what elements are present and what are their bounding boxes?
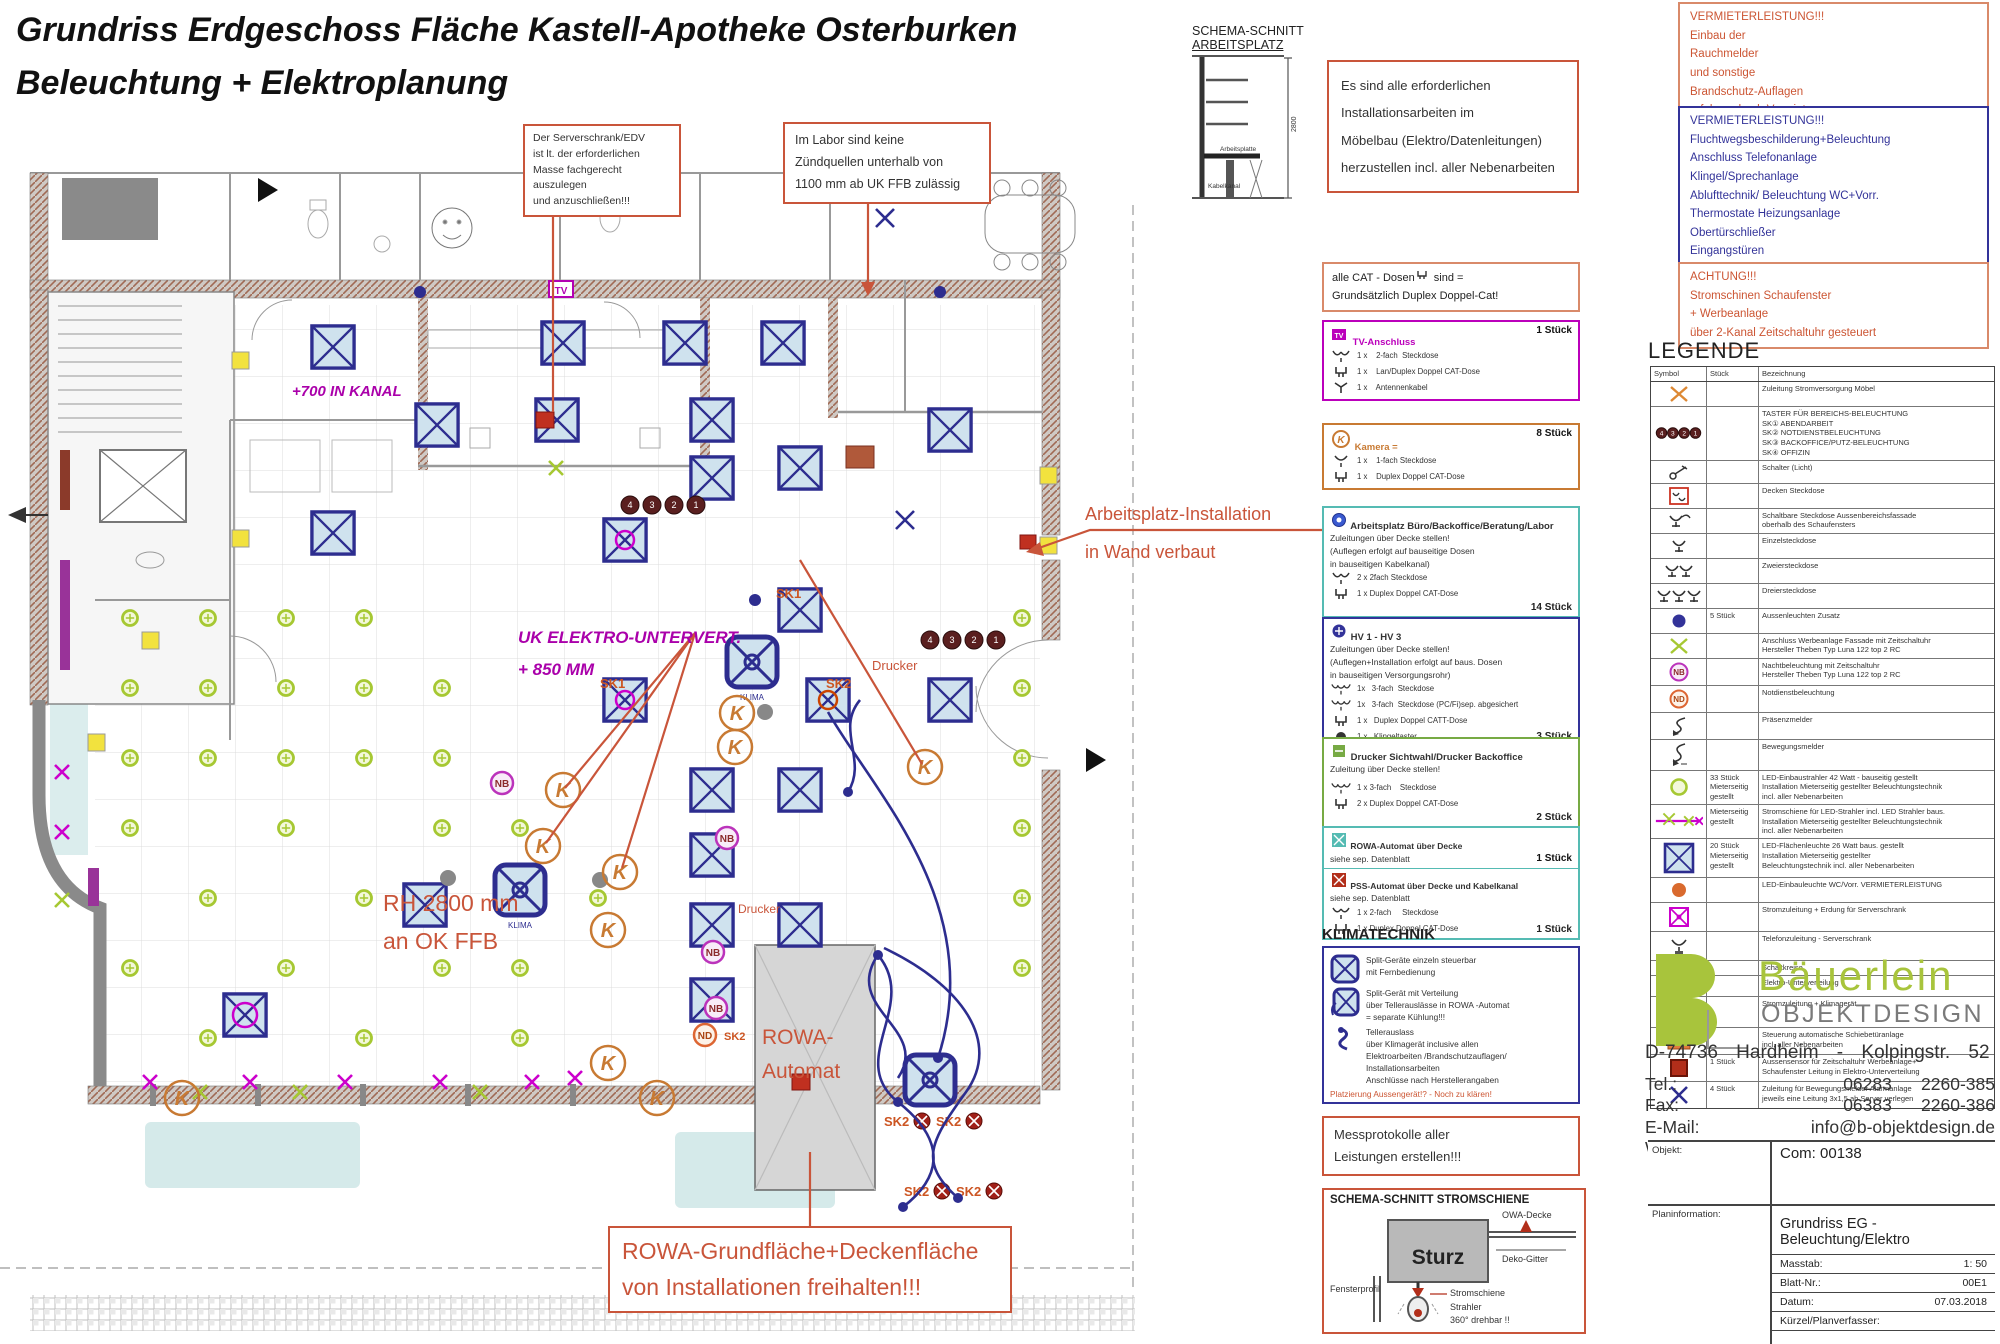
legend-stueck: 20 Stück Mieterseitig gestellt bbox=[1707, 839, 1759, 877]
spec-item: 1 x 3-fach Steckdose bbox=[1330, 780, 1572, 796]
legend-bezeichnung: Zweiersteckdose bbox=[1759, 559, 1994, 583]
steckdose-2fach-icon bbox=[1330, 570, 1352, 586]
svg-text:K: K bbox=[601, 1053, 617, 1075]
schema-arbeitsplatz: SCHEMA-SCHNITT ARBEITSPLATZ Arbeitsplatt… bbox=[1192, 24, 1342, 207]
spec-box-rowa: ROWA-Automat über Decke siehe sep. Daten… bbox=[1322, 826, 1580, 940]
legend-stueck: Mieterseitig gestellt bbox=[1707, 805, 1759, 838]
svg-text:Sturz: Sturz bbox=[1412, 1246, 1465, 1269]
legend-bezeichnung: Bewegungsmelder bbox=[1759, 740, 1994, 770]
svg-text:4: 4 bbox=[927, 635, 932, 645]
title-line-2: Beleuchtung + Elektroplanung bbox=[16, 57, 1017, 110]
legend-bezeichnung: Stromschiene für LED-Strahler incl. LED … bbox=[1759, 805, 1994, 838]
arbeitsplatz-icon bbox=[1330, 521, 1348, 532]
note-line: Brandschutz-Auflagen bbox=[1690, 83, 1977, 102]
cat-dose-icon bbox=[1330, 586, 1352, 602]
klima-label: KLIMA bbox=[508, 921, 533, 930]
klima-entry: Split-Gerät mit Verteilung über Tellerau… bbox=[1330, 987, 1572, 1023]
spec-item-text: 1 x 2-fach Steckdose bbox=[1357, 907, 1438, 919]
legend-stueck bbox=[1707, 559, 1759, 583]
note-achtung: ACHTUNG!!! Stromschinen Schaufenster+ We… bbox=[1678, 262, 1989, 349]
bewegungsmelder-icon bbox=[1651, 740, 1707, 770]
note-line: Zuleitungen über Decke stellen! bbox=[1330, 643, 1572, 656]
note-title: ACHTUNG!!! bbox=[1690, 268, 1977, 287]
legend-row: 4321TASTER FÜR BEREICHS-BELEUCHTUNG SK① … bbox=[1651, 406, 1994, 460]
brand-address: D-74736 Hardheim - Kolpingstr. 52 bbox=[1645, 1042, 1995, 1064]
legend-row: Einzelsteckdose bbox=[1651, 533, 1994, 558]
titleblock-row: Blatt-Nr.:00E1 bbox=[1772, 1274, 1995, 1293]
spec-title: ROWA-Automat über Decke bbox=[1350, 841, 1462, 851]
legend-stueck bbox=[1707, 713, 1759, 739]
titleblock-row-value: 00E1 bbox=[1962, 1277, 1987, 1289]
svg-text:K: K bbox=[175, 1088, 191, 1110]
bauerlein-logo bbox=[1648, 952, 1750, 1054]
svg-text:NB: NB bbox=[495, 779, 509, 790]
north-arrow bbox=[258, 178, 278, 202]
spec-item: 1 x Antennenkabel bbox=[1330, 380, 1572, 396]
legend-stueck bbox=[1707, 878, 1759, 902]
spec-item-text: 2 x Duplex Doppel CAT-Dose bbox=[1357, 798, 1458, 810]
schema-stromschiene: SCHEMA-SCHNITT STROMSCHIENE Sturz OWA-De… bbox=[1322, 1188, 1586, 1334]
cat-note-text: alle CAT - Dosen bbox=[1332, 272, 1415, 284]
spec-item: 1 x 2-fach Steckdose bbox=[1330, 905, 1572, 921]
note-line: Ablufttechnik/ Beleuchtung WC+Vorr. bbox=[1690, 187, 1977, 206]
titleblock-row: Kürzel/Planverfasser: bbox=[1772, 1312, 1995, 1331]
legend-header: Symbol Stück Bezeichnung bbox=[1651, 367, 1994, 382]
svg-text:Strahler: Strahler bbox=[1450, 1302, 1482, 1312]
spec-item-text: 1 x Antennenkabel bbox=[1357, 382, 1428, 394]
svg-text:4: 4 bbox=[627, 500, 632, 510]
werbeanlage-x-icon bbox=[1651, 634, 1707, 658]
spec-title: Kamera = bbox=[1355, 442, 1398, 453]
spec-item-text: 1 x Duplex Doppel CAT-Dose bbox=[1357, 588, 1458, 600]
note-line: Masse fachgerecht auszulegen bbox=[533, 163, 671, 195]
decken-steckdose-icon bbox=[1651, 484, 1707, 508]
svg-text:K: K bbox=[650, 1088, 666, 1110]
drucker-icon bbox=[1330, 752, 1348, 763]
spec-title: HV 1 - HV 3 bbox=[1351, 632, 1402, 643]
svg-text:Kabelkanal: Kabelkanal bbox=[1208, 183, 1241, 190]
svg-text:K: K bbox=[730, 703, 746, 725]
svg-text:SK1: SK1 bbox=[776, 586, 801, 601]
contact-row: E-Mail:info@b-objektdesign.de bbox=[1645, 1117, 1995, 1138]
spec-title: PSS-Automat über Decke und Kabelkanal bbox=[1350, 881, 1518, 891]
svg-text:3: 3 bbox=[949, 635, 954, 645]
svg-text:SK2: SK2 bbox=[884, 1114, 909, 1129]
titleblock-row: Masstab:1: 50 bbox=[1772, 1255, 1995, 1274]
note-title: VERMIETERLEISTUNG!!! bbox=[1690, 8, 1977, 27]
schema-stromschiene-title: SCHEMA-SCHNITT STROMSCHIENE bbox=[1330, 1194, 1578, 1206]
note-line: Einbau der bbox=[1690, 27, 1977, 46]
schema-arbeitsplatz-title1: SCHEMA-SCHNITT bbox=[1192, 24, 1342, 38]
spec-count: 8 Stück bbox=[1536, 428, 1572, 439]
kamera-icon: K bbox=[1330, 442, 1352, 453]
svg-text:Deko-Gitter: Deko-Gitter bbox=[1502, 1254, 1548, 1264]
note-serverschrank: Der Serverschrank/EDVist lt. der erforde… bbox=[523, 124, 681, 217]
note-line: Klingel/Sprechanlage bbox=[1690, 168, 1977, 187]
svg-text:Stromschiene: Stromschiene bbox=[1450, 1288, 1505, 1298]
klima-entry-text: Split-Gerät mit Verteilung über Tellerau… bbox=[1366, 987, 1509, 1023]
spec-item: 1x 3-fach Steckdose bbox=[1330, 681, 1572, 697]
titleblock-row-label: Masstab: bbox=[1780, 1258, 1823, 1270]
legend-bezeichnung: Anschluss Werbeanlage Fassade mit Zeitsc… bbox=[1759, 634, 1994, 658]
note-line: + Werbeanlage bbox=[1690, 305, 1977, 324]
legend-row: NBNachtbeleuchtung mit Zeitschaltuhr Her… bbox=[1651, 658, 1994, 685]
svg-text:NB: NB bbox=[1673, 668, 1685, 677]
note-title: VERMIETERLEISTUNG!!! bbox=[1690, 112, 1977, 131]
drawing-title: Grundriss Erdgeschoss Fläche Kastell-Apo… bbox=[16, 4, 1017, 109]
contact-label: Tel.: bbox=[1645, 1074, 1737, 1095]
legend-bezeichnung: Decken Steckdose bbox=[1759, 484, 1994, 508]
spec-item: 1 x Duplex Doppel CAT-Dose bbox=[1330, 586, 1572, 602]
spec-item: 1 x Lan/Duplex Doppel CAT-Dose bbox=[1330, 364, 1572, 380]
legend-bezeichnung: Zuleitung Stromversorgung Möbel bbox=[1759, 382, 1994, 406]
pss-icon bbox=[1330, 881, 1348, 891]
note-rowa-freihalten: ROWA-Grundfläche+Deckenflächevon Install… bbox=[608, 1226, 1012, 1313]
svg-text:NB: NB bbox=[720, 834, 734, 845]
note-line: in bauseitigen Versorgungsrohr) bbox=[1330, 669, 1572, 682]
spec-item-text: 1 x 3-fach Steckdose bbox=[1357, 782, 1436, 794]
spec-item-text: 1 x 1-fach Steckdose bbox=[1357, 455, 1436, 467]
cat-note-text2: sind = bbox=[1431, 272, 1464, 284]
rowa-icon bbox=[1330, 841, 1348, 851]
legend-bezeichnung: Schalter (Licht) bbox=[1759, 461, 1994, 483]
svg-text:SK2: SK2 bbox=[826, 676, 851, 691]
legend-row: LED-Einbauleuchte WC/Vorr. VERMIETERLEIS… bbox=[1651, 877, 1994, 902]
tv-anschluss-icon: TV bbox=[1330, 337, 1350, 348]
note-line: Zuleitung über Decke stellen! bbox=[1330, 763, 1572, 776]
steckdose-3fach-icon bbox=[1330, 681, 1352, 697]
notdienst-icon: ND bbox=[1651, 686, 1707, 712]
legend-stueck bbox=[1707, 509, 1759, 533]
steckdose-2fach-icon bbox=[1330, 905, 1352, 921]
legend-bezeichnung: Einzelsteckdose bbox=[1759, 534, 1994, 558]
spec-count: 14 Stück bbox=[1330, 602, 1572, 613]
contact-value: 06283 2260-385 bbox=[1737, 1074, 1995, 1095]
spec-box-drucker: Drucker Sichtwahl/Drucker Backoffice Zul… bbox=[1322, 737, 1580, 828]
schema-arbeitsplatz-title2: ARBEITSPLATZ bbox=[1192, 38, 1342, 52]
contact-row: Fax:06383 2260-386 bbox=[1645, 1095, 1995, 1116]
led-einbaustrahler-icon bbox=[1651, 771, 1707, 804]
legend-row: Schalter (Licht) bbox=[1651, 460, 1994, 483]
spec-count: 1 Stück bbox=[1536, 853, 1572, 864]
svg-text:1: 1 bbox=[993, 635, 998, 645]
titleblock-row: Datum:07.03.2018 bbox=[1772, 1293, 1995, 1312]
note-line: (Auflegen+Installation erfolgt auf baus.… bbox=[1330, 656, 1572, 669]
titleblock-row-label: Datum: bbox=[1780, 1296, 1814, 1308]
spec-box-tv: TV TV-Anschluss 1 Stück 1 x 2-fach Steck… bbox=[1322, 320, 1580, 401]
legend-row: Dreiersteckdose bbox=[1651, 583, 1994, 608]
svg-text:TV: TV bbox=[1335, 333, 1344, 340]
brand-subtitle: OBJEKTDESIGN bbox=[1761, 1000, 1984, 1029]
legend-row: Zuleitung Stromversorgung Möbel bbox=[1651, 382, 1994, 406]
spec-item-text: 1 x Duplex Doppel CATT-Dose bbox=[1357, 715, 1467, 727]
svg-text:3: 3 bbox=[649, 500, 654, 510]
cat-dose-icon bbox=[1330, 364, 1352, 380]
svg-text:4: 4 bbox=[1660, 431, 1664, 438]
spec-title: Drucker Sichtwahl/Drucker Backoffice bbox=[1351, 752, 1523, 763]
spec-line: siehe sep. Datenblatt bbox=[1330, 892, 1572, 905]
legend-bezeichnung: LED-Einbauleuchte WC/Vorr. VERMIETERLEIS… bbox=[1759, 878, 1994, 902]
titleblock-row-value: 1: 50 bbox=[1964, 1258, 1987, 1270]
klima-entry-text: Split-Geräte einzeln steuerbar mit Fernb… bbox=[1366, 954, 1476, 978]
steckdose-2fach-icon bbox=[1330, 348, 1352, 364]
svg-text:OWA-Decke: OWA-Decke bbox=[1502, 1210, 1552, 1220]
svg-text:K: K bbox=[1337, 435, 1345, 446]
stromschiene-icon bbox=[1651, 805, 1707, 838]
svg-text:ND: ND bbox=[698, 1031, 712, 1042]
svg-text:3: 3 bbox=[1671, 431, 1675, 438]
legend-title: LEGENDE bbox=[1648, 338, 1760, 364]
legend-header-symbol: Symbol bbox=[1651, 367, 1707, 381]
svg-text:Arbeitsplatte: Arbeitsplatte bbox=[1220, 146, 1257, 153]
legend-bezeichnung: Nachtbeleuchtung mit Zeitschaltuhr Herst… bbox=[1759, 659, 1994, 685]
plan-title-value: Grundriss EG - Beleuchtung/Elektro bbox=[1772, 1206, 1995, 1255]
note-line: (Auflegen erfolgt auf bauseitige Dosen bbox=[1330, 545, 1572, 558]
svg-text:SK2: SK2 bbox=[724, 1031, 745, 1043]
einzelsteckdose-icon bbox=[1651, 534, 1707, 558]
legend-header-stueck: Stück bbox=[1707, 367, 1759, 381]
spec-item-text: 1x 3-fach Steckdose (PC/Fi)sep. abgesich… bbox=[1357, 699, 1518, 711]
note-line: und sonstige bbox=[1690, 64, 1977, 83]
legend-stueck bbox=[1707, 740, 1759, 770]
aussenleuchte-icon bbox=[1651, 609, 1707, 633]
contact-label: Fax: bbox=[1645, 1095, 1737, 1116]
cat-dose-icon bbox=[1330, 796, 1352, 812]
legend-stueck: 5 Stück bbox=[1707, 609, 1759, 633]
legend-stueck bbox=[1707, 407, 1759, 460]
legend-bezeichnung: Schaltbare Steckdose Aussenbereichsfassa… bbox=[1759, 509, 1994, 533]
spec-title: TV-Anschluss bbox=[1353, 337, 1416, 348]
contact-label: E-Mail: bbox=[1645, 1117, 1737, 1138]
legend-stueck bbox=[1707, 461, 1759, 483]
note-line: Zündquellen unterhalb von bbox=[795, 152, 979, 174]
svg-text:1: 1 bbox=[1694, 431, 1698, 438]
klima-placement-note: Platzierung Aussengerät!? - Noch zu klär… bbox=[1330, 1089, 1572, 1099]
contact-value: 06383 2260-386 bbox=[1737, 1095, 1995, 1116]
note-cat-dosen: alle CAT - Dosen sind = Grundsätzlich Du… bbox=[1322, 262, 1580, 312]
note-line: Möbelbau (Elektro/Datenleitungen) bbox=[1341, 127, 1565, 154]
spec-box-kamera: K Kamera = 8 Stück 1 x 1-fach Steckdose1… bbox=[1322, 423, 1580, 490]
legend-bezeichnung: Stromzuleitung + Erdung für Serverschran… bbox=[1759, 903, 1994, 931]
spec-item: 1 x 1-fach Steckdose bbox=[1330, 453, 1572, 469]
note-line: 1100 mm ab UK FFB zulässig bbox=[795, 174, 979, 196]
legend-row: Präsenzmelder bbox=[1651, 712, 1994, 739]
tv-icon: TV bbox=[555, 286, 568, 297]
title-line-1: Grundriss Erdgeschoss Fläche Kastell-Apo… bbox=[16, 4, 1017, 57]
led-flaechenleuchte-icon bbox=[1651, 839, 1707, 877]
svg-text:ND: ND bbox=[1673, 695, 1685, 704]
moebel-zuleitung-x-icon bbox=[1651, 382, 1707, 406]
note-line: Leistungen erstellen!!! bbox=[1334, 1146, 1568, 1168]
spec-item-text: 1 x 2-fach Steckdose bbox=[1357, 350, 1438, 362]
legend-stueck bbox=[1707, 634, 1759, 658]
server-strom-icon bbox=[1651, 903, 1707, 931]
note-line: Messprotokolle aller bbox=[1334, 1124, 1568, 1146]
cat-dose-icon bbox=[1415, 272, 1431, 284]
note-line: von Installationen freihalten!!! bbox=[622, 1270, 998, 1306]
note-line: Fluchtwegsbeschilderung+Beleuchtung bbox=[1690, 131, 1977, 150]
titleblock-row-value: 07.03.2018 bbox=[1934, 1296, 1987, 1308]
note-line: Stromschinen Schaufenster bbox=[1690, 287, 1977, 306]
legend-bezeichnung: LED-Flächenleuchte 26 Watt baus. gestell… bbox=[1759, 839, 1994, 877]
titleblock-row-label: Blatt-Nr.: bbox=[1780, 1277, 1821, 1289]
note-line: Zuleitungen über Decke stellen! bbox=[1330, 532, 1572, 545]
legend-row: Stromzuleitung + Erdung für Serverschran… bbox=[1651, 902, 1994, 931]
legend-bezeichnung: Notdienstbeleuchtung bbox=[1759, 686, 1994, 712]
svg-text:SK2: SK2 bbox=[904, 1184, 929, 1199]
planinformation-label: Planinformation: bbox=[1648, 1206, 1772, 1344]
note-line: Obertürschließer bbox=[1690, 224, 1977, 243]
led-einbauleuchte-wc-icon bbox=[1651, 878, 1707, 902]
klima-entry-text: Tellerauslass über Klimagerät inclusive … bbox=[1366, 1026, 1507, 1086]
note-line: Thermostate Heizungsanlage bbox=[1690, 205, 1977, 224]
klima-entry: Tellerauslass über Klimagerät inclusive … bbox=[1330, 1026, 1572, 1086]
rowa-automat-area bbox=[755, 945, 875, 1190]
dreiersteckdose-icon bbox=[1651, 584, 1707, 608]
svg-text:K: K bbox=[613, 862, 629, 884]
legend-row: 33 Stück Mieterseitig gestelltLED-Einbau… bbox=[1651, 770, 1994, 804]
spec-box-arbeitsplatz: Arbeitsplatz Büro/Backoffice/Beratung/La… bbox=[1322, 506, 1580, 618]
spec-line: siehe sep. Datenblatt bbox=[1330, 853, 1410, 866]
legend-row: Anschluss Werbeanlage Fassade mit Zeitsc… bbox=[1651, 633, 1994, 658]
note-line: Es sind alle erforderlichen bbox=[1341, 72, 1565, 99]
legend-bezeichnung: Präsenzmelder bbox=[1759, 713, 1994, 739]
note-line: Installationsarbeiten im bbox=[1341, 99, 1565, 126]
praesenzmelder-icon bbox=[1651, 713, 1707, 739]
note-line: Der Serverschrank/EDV bbox=[533, 131, 671, 147]
note-labor: Im Labor sind keineZündquellen unterhalb… bbox=[783, 122, 991, 204]
objekt-value: Com: 00138 bbox=[1772, 1142, 1995, 1204]
spec-item-text: 1x 3-fach Steckdose bbox=[1357, 683, 1434, 695]
legend-stueck bbox=[1707, 534, 1759, 558]
note-line: Rauchmelder bbox=[1690, 45, 1977, 64]
spec-box-klimatechnik: Split-Geräte einzeln steuerbar mit Fernb… bbox=[1322, 946, 1580, 1104]
spec-item-text: 1 x Duplex Doppel CAT-Dose bbox=[1357, 471, 1465, 483]
legend-row: Schaltbare Steckdose Aussenbereichsfassa… bbox=[1651, 508, 1994, 533]
svg-text:2: 2 bbox=[971, 635, 976, 645]
legend-row: 20 Stück Mieterseitig gestelltLED-Fläche… bbox=[1651, 838, 1994, 877]
note-line: ist lt. der erforderlichen bbox=[533, 147, 671, 163]
spec-item-text: 2 x 2fach Steckdose bbox=[1357, 572, 1427, 584]
svg-text:K: K bbox=[728, 737, 744, 759]
nachtbeleuchtung-icon: NB bbox=[1651, 659, 1707, 685]
svg-text:NB: NB bbox=[709, 1004, 723, 1015]
legend-bezeichnung: LED-Einbaustrahler 42 Watt - bauseitig g… bbox=[1759, 771, 1994, 804]
legend-stueck bbox=[1707, 659, 1759, 685]
spec-count: 1 Stück bbox=[1536, 325, 1572, 336]
spec-item-text: 1 x Lan/Duplex Doppel CAT-Dose bbox=[1357, 366, 1480, 378]
note-vermieterleistung-2: VERMIETERLEISTUNG!!! Fluchtwegsbeschilde… bbox=[1678, 106, 1989, 267]
legend-stueck bbox=[1707, 382, 1759, 406]
teller-hose-icon bbox=[1330, 1026, 1360, 1052]
legend-row: Decken Steckdose bbox=[1651, 483, 1994, 508]
legend-row: Bewegungsmelder bbox=[1651, 739, 1994, 770]
svg-text:K: K bbox=[601, 920, 617, 942]
note-installationsarbeiten: Es sind alle erforderlichenInstallations… bbox=[1327, 60, 1579, 193]
spec-item: 1 x Duplex Doppel CAT-Dose bbox=[1330, 469, 1572, 485]
spec-item: 2 x Duplex Doppel CAT-Dose bbox=[1330, 796, 1572, 812]
legend-stueck bbox=[1707, 903, 1759, 931]
hv-icon bbox=[1330, 632, 1348, 643]
klimatechnik-heading: KLIMATECHNIK bbox=[1322, 926, 1435, 943]
note-line: und anzuschließen!!! bbox=[533, 194, 671, 210]
titleblock-row-label: Kürzel/Planverfasser: bbox=[1780, 1315, 1880, 1327]
legend-stueck bbox=[1707, 686, 1759, 712]
note-line: ROWA-Grundfläche+Deckenfläche bbox=[622, 1234, 998, 1270]
legend-row: 5 StückAussenleuchten Zusatz bbox=[1651, 608, 1994, 633]
legend-stueck bbox=[1707, 484, 1759, 508]
objekt-label: Objekt: bbox=[1648, 1142, 1772, 1204]
svg-text:SK1: SK1 bbox=[600, 676, 625, 691]
brand-name: Bäuerlein bbox=[1758, 952, 1953, 1000]
spec-count: 2 Stück bbox=[1330, 812, 1572, 823]
contact-row: Tel.:06283 2260-385 bbox=[1645, 1074, 1995, 1095]
contact-value: info@b-objektdesign.de bbox=[1737, 1117, 1995, 1138]
svg-text:NB: NB bbox=[706, 948, 720, 959]
svg-text:360° drehbar !!: 360° drehbar !! bbox=[1450, 1315, 1510, 1325]
taster-gruppe-icon: 4321 bbox=[1651, 407, 1707, 460]
titleblock: Objekt: Com: 00138 Planinformation: Grun… bbox=[1648, 1140, 1995, 1340]
note-line: Im Labor sind keine bbox=[795, 130, 979, 152]
spec-item: 2 x 2fach Steckdose bbox=[1330, 570, 1572, 586]
cat-note-line2: Grundsätzlich Duplex Doppel-Cat! bbox=[1332, 288, 1570, 306]
legend-bezeichnung: Aussenleuchten Zusatz bbox=[1759, 609, 1994, 633]
spec-title: Arbeitsplatz Büro/Backoffice/Beratung/La… bbox=[1350, 521, 1553, 532]
legend-bezeichnung: Dreiersteckdose bbox=[1759, 584, 1994, 608]
svg-text:2: 2 bbox=[1682, 431, 1686, 438]
schema-stromschiene-sketch: Sturz OWA-Decke Deko-Gitter Fensterprofi… bbox=[1330, 1206, 1578, 1326]
legend-row: NDNotdienstbeleuchtung bbox=[1651, 685, 1994, 712]
steckdose-1fach-icon bbox=[1330, 453, 1352, 469]
note-line: Anschluss Telefonanlage bbox=[1690, 149, 1977, 168]
spec-item: 1 x Duplex Doppel CATT-Dose bbox=[1330, 713, 1572, 729]
note-messprotokolle: Messprotokolle allerLeistungen erstellen… bbox=[1322, 1116, 1580, 1176]
klima-entry: Split-Geräte einzeln steuerbar mit Fernb… bbox=[1330, 954, 1572, 984]
legend-stueck: 33 Stück Mieterseitig gestellt bbox=[1707, 771, 1759, 804]
steckdose-3fach-icon bbox=[1330, 697, 1352, 713]
spec-box-hv: HV 1 - HV 3 Zuleitungen über Decke stell… bbox=[1322, 617, 1580, 747]
spec-item: 1x 3-fach Steckdose (PC/Fi)sep. abgesich… bbox=[1330, 697, 1572, 713]
legend-row: Zweiersteckdose bbox=[1651, 558, 1994, 583]
split-dist-icon bbox=[1330, 987, 1360, 1017]
schema-arbeitsplatz-sketch: Arbeitsplatte Kabelkanal 2800 bbox=[1192, 52, 1342, 202]
svg-text:Fensterprofil: Fensterprofil bbox=[1330, 1284, 1380, 1294]
spec-item: 1 x 2-fach Steckdose bbox=[1330, 348, 1572, 364]
note-line: in bauseitigen Kabelkanal) bbox=[1330, 558, 1572, 571]
cat-dose-icon bbox=[1330, 469, 1352, 485]
legend-bezeichnung: TASTER FÜR BEREICHS-BELEUCHTUNG SK① ABEN… bbox=[1759, 407, 1994, 460]
note-line: Eingangstüren bbox=[1690, 242, 1977, 261]
legend-header-bezeichnung: Bezeichnung bbox=[1759, 367, 1994, 381]
legend-row: Mieterseitig gestelltStromschiene für LE… bbox=[1651, 804, 1994, 838]
steckdose-3fach-icon bbox=[1330, 780, 1352, 796]
zweiersteckdose-icon bbox=[1651, 559, 1707, 583]
svg-text:2800: 2800 bbox=[1291, 116, 1298, 132]
cat-dose-icon bbox=[1330, 713, 1352, 729]
schalter-icon bbox=[1651, 461, 1707, 483]
note-line: herzustellen incl. aller Nebenarbeiten bbox=[1341, 154, 1565, 181]
antennen-icon bbox=[1330, 380, 1352, 396]
split-unit-icon bbox=[1330, 954, 1360, 984]
schaltbare-steckdose-icon bbox=[1651, 509, 1707, 533]
svg-text:2: 2 bbox=[671, 500, 676, 510]
legend-stueck bbox=[1707, 584, 1759, 608]
svg-text:1: 1 bbox=[693, 500, 698, 510]
